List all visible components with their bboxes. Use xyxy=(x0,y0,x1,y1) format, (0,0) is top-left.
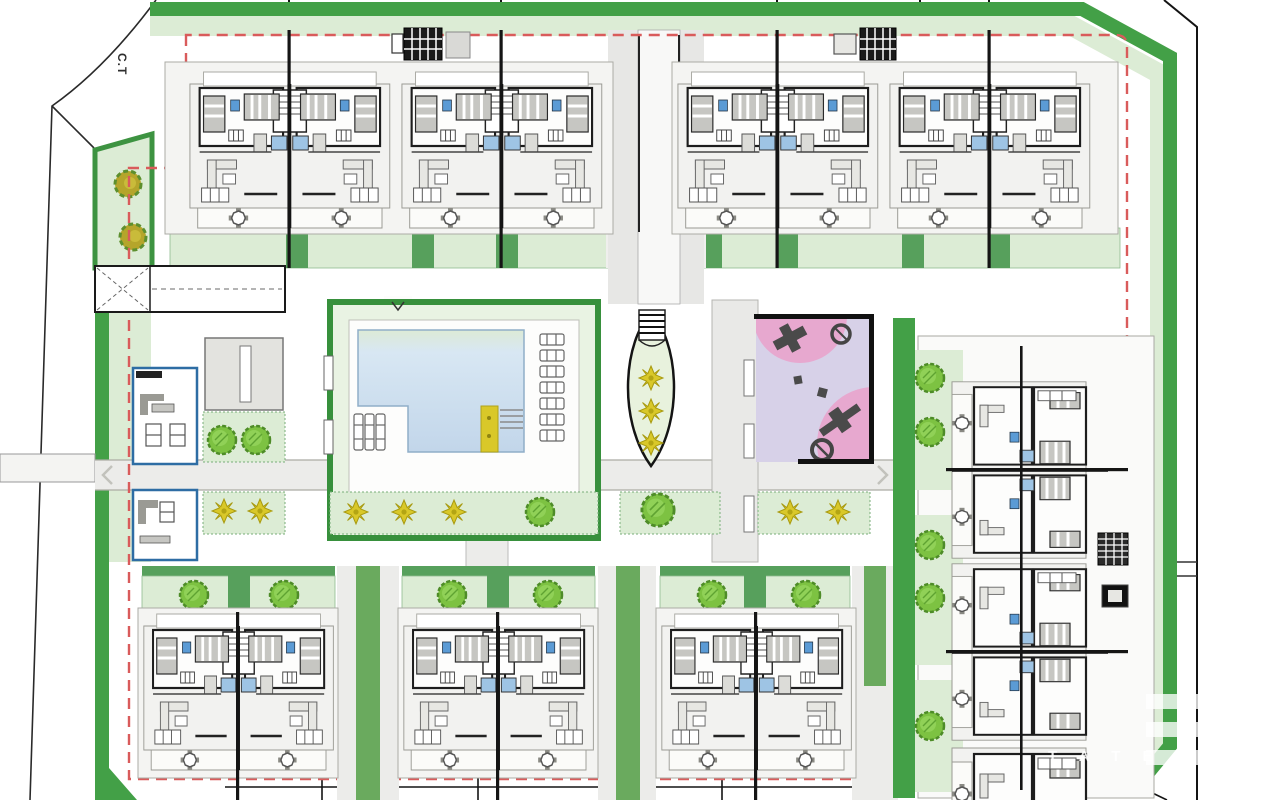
site-plan: C.T T A T E xyxy=(0,0,1280,800)
tree xyxy=(534,581,562,609)
pool-loungers-left xyxy=(354,414,385,450)
watermark-text: T A T E xyxy=(1048,748,1278,765)
site-office xyxy=(133,368,197,464)
olive-tree xyxy=(120,224,146,250)
flower-bands xyxy=(203,492,870,534)
bench xyxy=(324,356,333,390)
flower xyxy=(442,500,466,524)
tree xyxy=(698,581,726,609)
utility-box xyxy=(392,28,470,60)
tree xyxy=(180,581,208,609)
tree xyxy=(916,584,944,612)
flower xyxy=(778,500,802,524)
tree xyxy=(916,364,944,392)
tree xyxy=(916,418,944,446)
tree xyxy=(792,581,820,609)
tree xyxy=(208,426,236,454)
planter-island xyxy=(628,310,674,466)
ct-label: C.T xyxy=(115,53,129,97)
bottom-building-row xyxy=(138,566,898,800)
tree xyxy=(270,581,298,609)
right-green-strip xyxy=(893,318,915,798)
watermark-stripe xyxy=(1146,694,1204,709)
island-stairs xyxy=(639,310,665,346)
tree xyxy=(916,712,944,740)
flower xyxy=(344,500,368,524)
bench xyxy=(324,420,333,454)
watermark-stripe xyxy=(1146,722,1204,737)
flower xyxy=(392,500,416,524)
tree xyxy=(438,581,466,609)
flower xyxy=(639,431,663,455)
bench xyxy=(744,360,754,396)
tree xyxy=(916,531,944,559)
flower xyxy=(212,499,236,523)
parking-ramp xyxy=(95,266,285,312)
site-office-lower xyxy=(133,490,197,560)
site-plan-drawing xyxy=(0,0,1280,800)
flower xyxy=(248,499,272,523)
flower xyxy=(826,500,850,524)
tree xyxy=(242,426,270,454)
left-green-strip xyxy=(95,134,152,268)
right-building-column xyxy=(893,318,1154,800)
tree xyxy=(642,494,674,526)
bottom-garden-strips xyxy=(142,566,850,614)
pool-loungers-right xyxy=(540,334,564,441)
tree xyxy=(526,498,554,526)
west-access-path xyxy=(0,454,95,482)
flower xyxy=(639,366,663,390)
pool-flower-strip xyxy=(481,406,498,452)
bench xyxy=(744,424,754,458)
bench xyxy=(744,496,754,532)
flower xyxy=(639,399,663,423)
